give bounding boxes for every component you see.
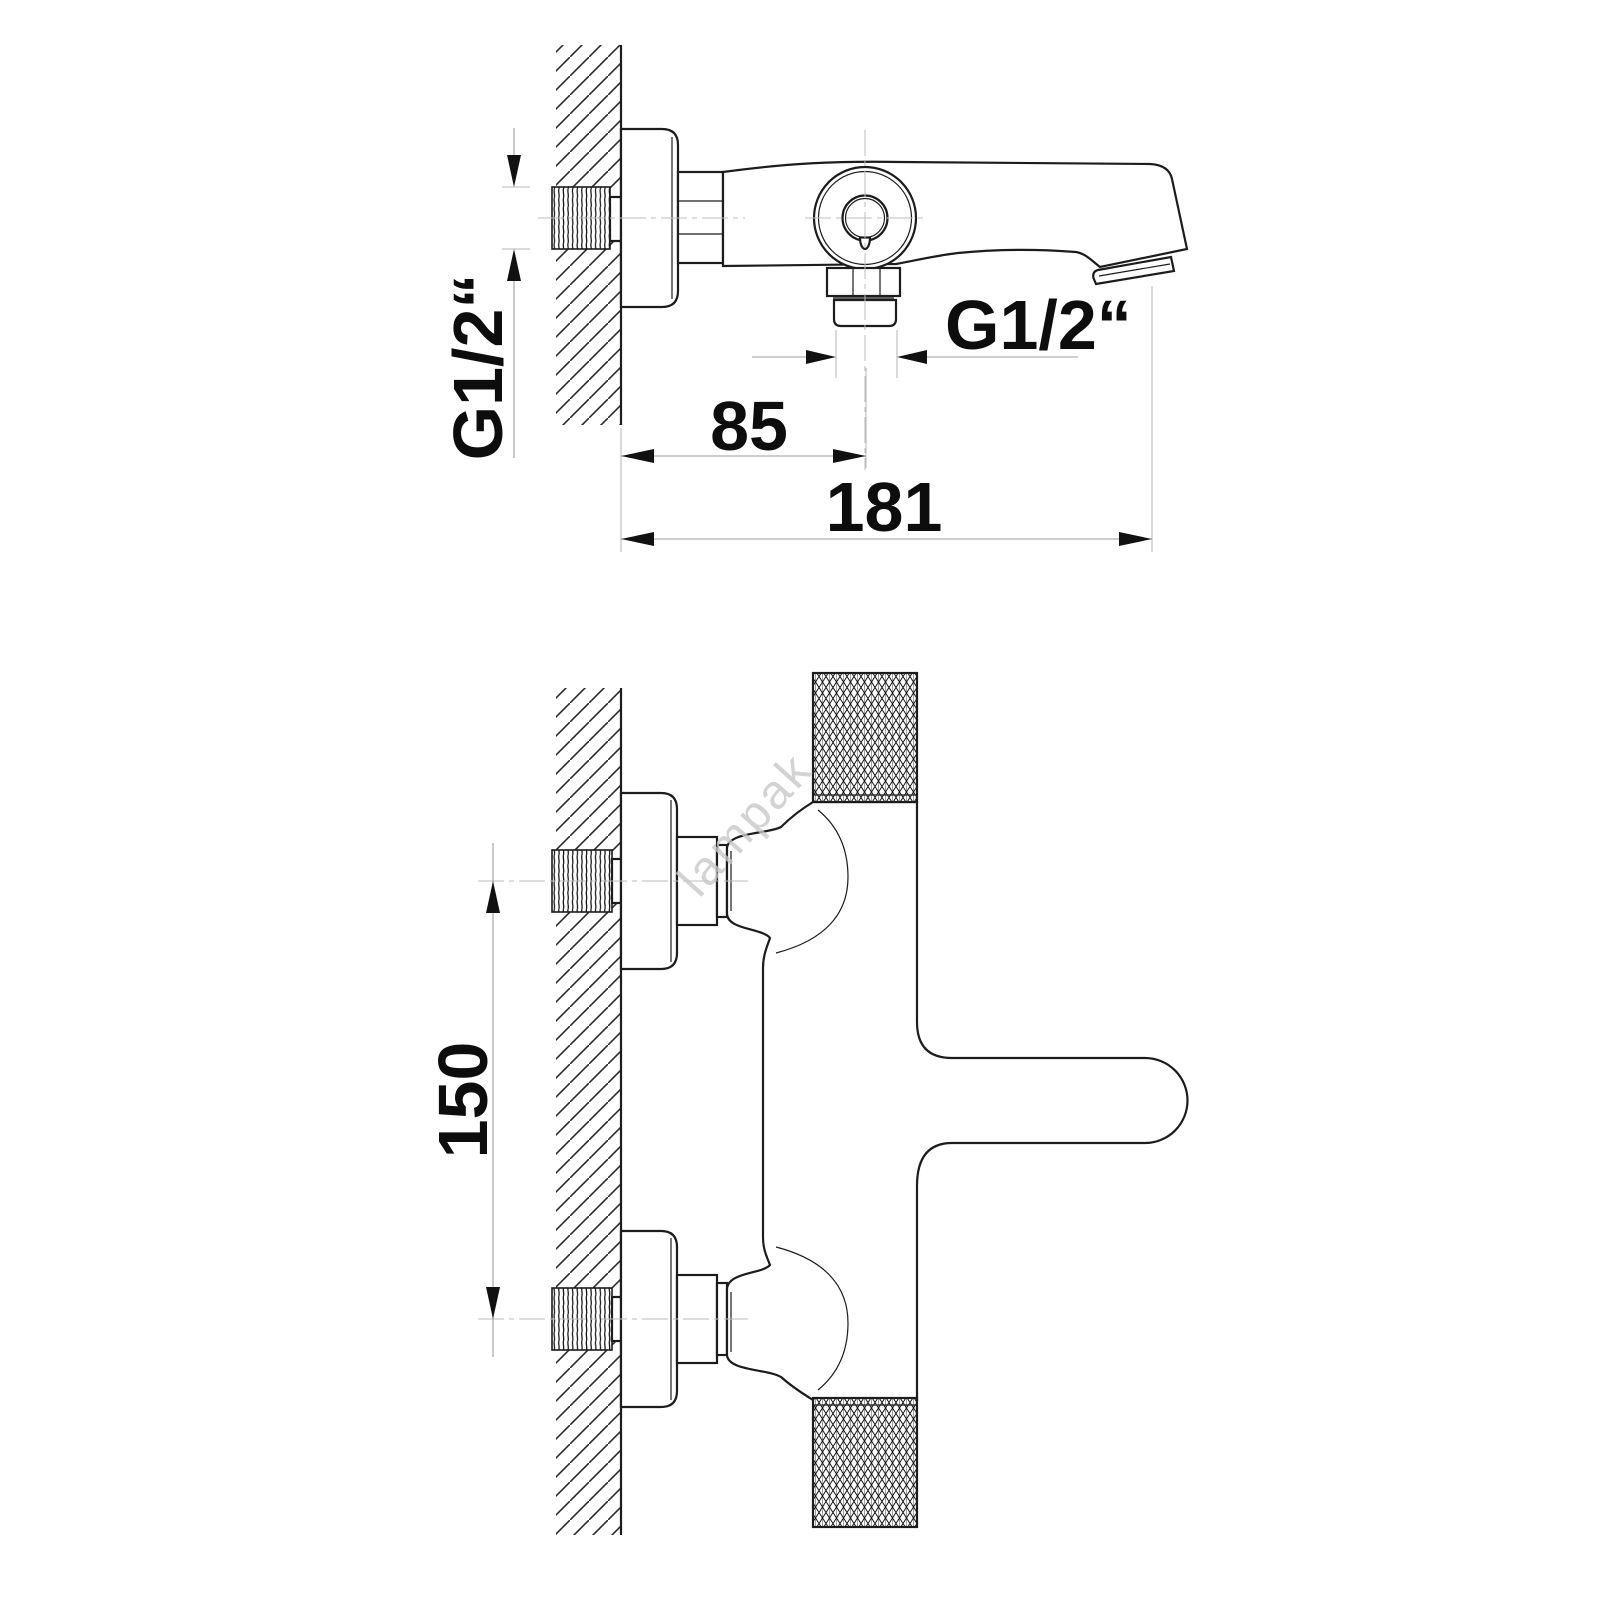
arrowhead-right-icon xyxy=(833,449,866,463)
overall-length-dimension-label: 181 xyxy=(826,468,943,546)
arrowhead-right-icon xyxy=(1119,532,1152,546)
arrowhead-up-icon xyxy=(486,881,500,913)
arrowhead-right-icon xyxy=(806,350,836,364)
dimension-wall-thread: G1/2“ xyxy=(439,128,530,460)
arrowhead-left-icon xyxy=(621,449,654,463)
dim-ticks-wall-thread xyxy=(502,187,530,249)
inlet-spacing-dimension-label: 150 xyxy=(424,1042,502,1159)
bath-mixer-dimension-drawing: G1/2“ G1/2“ 85 181 xyxy=(0,0,1600,1600)
technical-drawing-page: G1/2“ G1/2“ 85 181 xyxy=(0,0,1600,1600)
arrowhead-down-icon xyxy=(486,1287,500,1319)
dimension-wall-to-outlet: 85 xyxy=(621,368,866,468)
outlet-hex-nut xyxy=(827,268,900,296)
arrowhead-left-icon xyxy=(621,532,654,546)
upper-knurled-handle xyxy=(813,673,917,802)
dimension-outlet-thread: G1/2“ xyxy=(752,286,1132,378)
lower-knurled-handle xyxy=(813,1398,917,1527)
wall-thread-size-label: G1/2“ xyxy=(439,274,517,461)
outlet-thread-size-label: G1/2“ xyxy=(945,286,1132,364)
faucet-body-front-view xyxy=(727,802,1188,1400)
thread-collar-top-view xyxy=(610,197,621,241)
wall-hatch-front-view xyxy=(556,688,621,1535)
dimension-inlet-spacing: 150 xyxy=(424,843,502,1357)
arrowhead-left-icon xyxy=(897,350,927,364)
arrowhead-down-icon xyxy=(507,155,521,187)
top-view: G1/2“ G1/2“ 85 181 xyxy=(439,45,1187,552)
front-view: 150 xyxy=(424,673,1188,1535)
faucet-body-top-view xyxy=(723,162,1187,267)
wall-to-outlet-dimension-label: 85 xyxy=(710,387,788,465)
